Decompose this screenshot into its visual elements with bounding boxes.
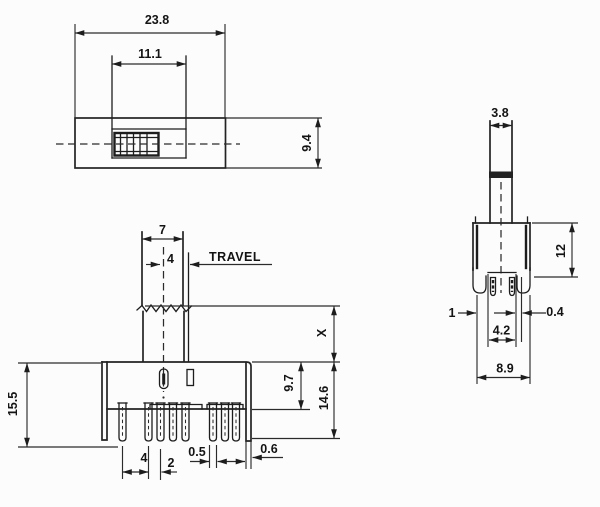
dim-body-height: 9.7 bbox=[282, 374, 296, 391]
dim-knob-width: 7 bbox=[159, 223, 166, 237]
dim-height-with-pins: 14.6 bbox=[317, 386, 331, 410]
dim-overall-height: 15.5 bbox=[6, 392, 20, 416]
dim-overall-width: 23.8 bbox=[145, 13, 169, 27]
dim-foot-width: 1 bbox=[449, 306, 456, 320]
dim-side-body-width: 8.9 bbox=[496, 362, 513, 376]
side-stem-band bbox=[489, 172, 513, 179]
dim-pin-pitch-a: 4 bbox=[141, 451, 148, 465]
side-view-outline bbox=[473, 121, 530, 296]
side-view: 3.8 12 1 0.4 4.2 8.9 bbox=[449, 106, 578, 384]
dim-pin-width: 0.5 bbox=[188, 445, 205, 459]
dim-pin-pitch-b: 2 bbox=[168, 456, 175, 470]
top-view: 23.8 11.1 9.4 bbox=[56, 13, 322, 168]
travel-label: TRAVEL bbox=[209, 250, 261, 264]
dim-slot-width: 11.1 bbox=[138, 47, 162, 61]
side-foot-left bbox=[473, 268, 486, 293]
dim-body-depth: 9.4 bbox=[300, 134, 314, 151]
side-pins bbox=[491, 278, 515, 296]
dim-wall-thickness: 0.6 bbox=[260, 442, 277, 456]
dim-stem-width: 3.8 bbox=[491, 106, 508, 120]
drawing-canvas: 23.8 11.1 9.4 bbox=[0, 0, 600, 507]
dim-channel-width: 4.2 bbox=[493, 324, 510, 338]
dim-side-body-height: 12 bbox=[554, 244, 568, 258]
top-body-outline bbox=[75, 118, 226, 168]
dim-pin-offset: 0.4 bbox=[546, 305, 563, 319]
dim-center-offset: 4 bbox=[167, 252, 174, 266]
front-view-dimensions bbox=[18, 239, 340, 480]
front-slot-small bbox=[187, 370, 194, 386]
dim-stem-height: X bbox=[315, 328, 329, 337]
top-view-outline bbox=[56, 56, 240, 168]
front-view: 7 4 TRAVEL X 15.5 9.7 14.6 4 2 0.5 0.6 bbox=[6, 223, 340, 480]
side-foot-right bbox=[517, 268, 530, 293]
dimension-drawing: 23.8 11.1 9.4 bbox=[0, 0, 600, 507]
